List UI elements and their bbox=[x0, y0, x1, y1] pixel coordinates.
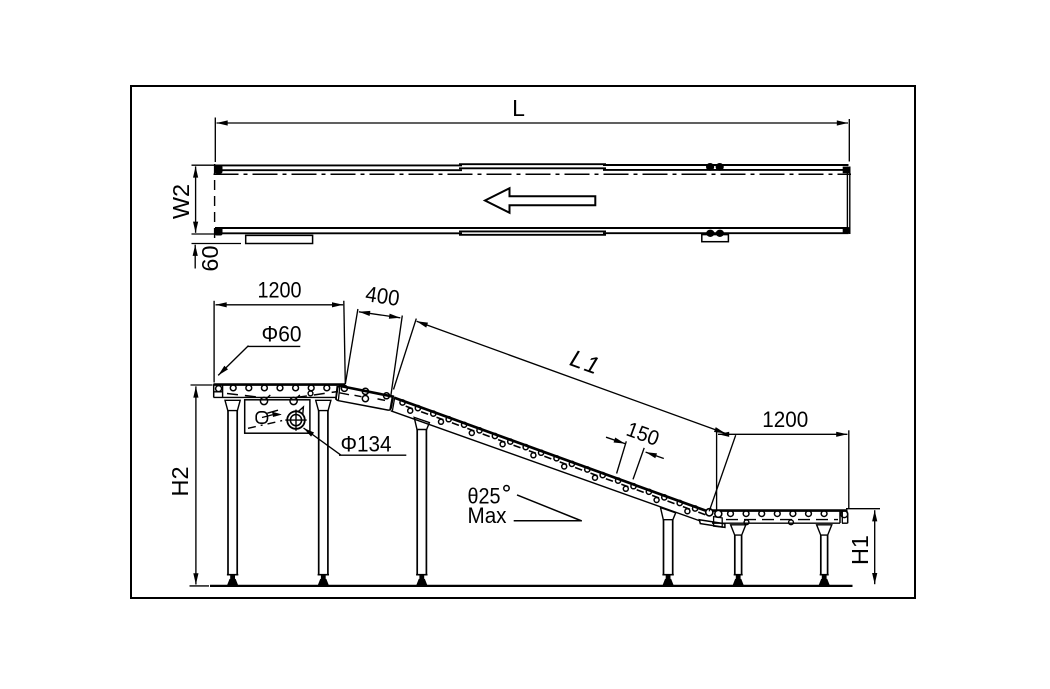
svg-text:W2: W2 bbox=[168, 184, 194, 219]
svg-text:H1: H1 bbox=[847, 535, 873, 565]
svg-text:60: 60 bbox=[197, 245, 223, 271]
svg-text:H2: H2 bbox=[167, 466, 193, 496]
svg-text:400: 400 bbox=[364, 281, 401, 311]
svg-text:L: L bbox=[512, 95, 525, 121]
svg-text:150: 150 bbox=[623, 418, 662, 451]
svg-text:Max: Max bbox=[468, 503, 507, 528]
svg-text:1200: 1200 bbox=[762, 407, 808, 432]
svg-text:L1: L1 bbox=[567, 345, 605, 381]
svg-text:Φ60: Φ60 bbox=[262, 322, 302, 347]
svg-text:Φ134: Φ134 bbox=[341, 432, 392, 457]
svg-text:1200: 1200 bbox=[258, 277, 302, 302]
